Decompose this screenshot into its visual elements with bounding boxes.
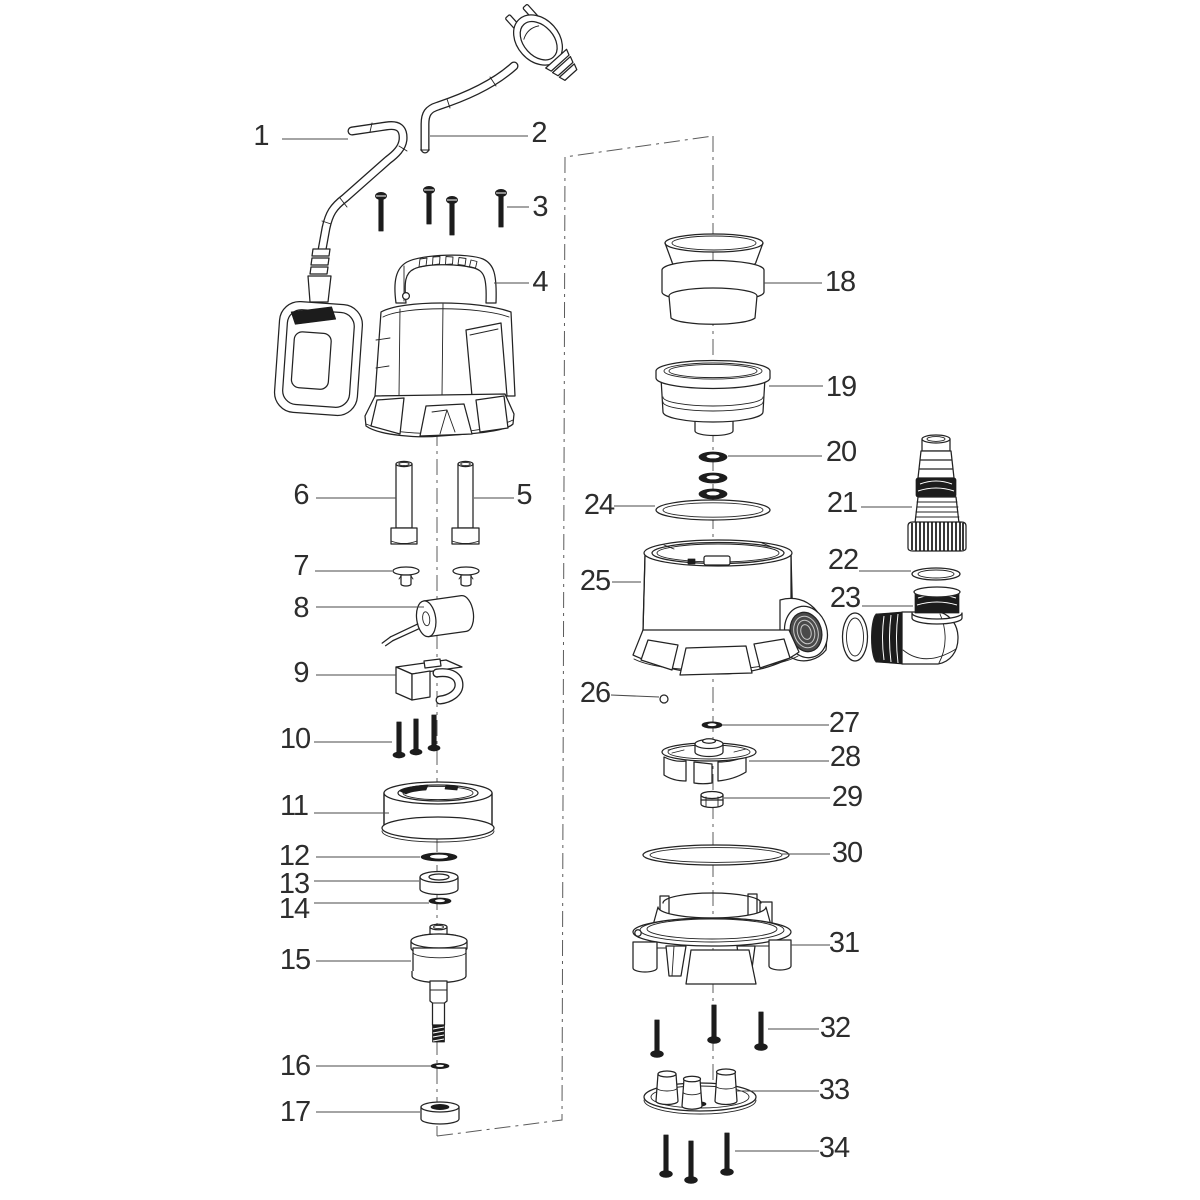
screw	[423, 186, 434, 224]
part-label-10: 10	[280, 723, 392, 755]
part-21-hose-adapter	[908, 435, 966, 551]
part-label-4: 4	[494, 266, 548, 298]
part-label-22: 22	[828, 544, 911, 576]
part-label-15: 15	[280, 944, 411, 976]
part-number: 5	[516, 479, 531, 511]
part-number: 4	[532, 266, 548, 298]
leader-line	[611, 695, 659, 697]
screw	[755, 1012, 768, 1050]
seal-ring	[699, 473, 727, 483]
part-label-27: 27	[722, 707, 859, 739]
part-number: 1	[253, 120, 268, 152]
part-number: 27	[829, 707, 859, 739]
pin	[393, 567, 419, 586]
part-5-sleeve	[452, 461, 479, 544]
part-9-bracket	[396, 659, 462, 700]
part-label-23: 23	[830, 582, 913, 614]
part-number: 6	[293, 479, 308, 511]
exploded-parts-diagram: 1234567891011121314151617181920212223242…	[0, 0, 1200, 1200]
screw	[410, 719, 422, 755]
part-label-5: 5	[474, 479, 532, 511]
part-23-elbow	[843, 587, 963, 664]
part-number: 2	[531, 117, 546, 149]
plate-post	[715, 1069, 737, 1105]
seal-ring	[699, 452, 727, 462]
part-31-base	[633, 893, 791, 984]
part-number: 18	[825, 266, 855, 298]
part-number: 7	[293, 550, 308, 582]
part-label-29: 29	[724, 781, 862, 813]
plate-post	[682, 1076, 702, 1109]
part-4-pump-body	[365, 255, 515, 437]
part-label-2: 2	[430, 117, 547, 149]
part-label-3: 3	[507, 191, 548, 223]
part-number: 9	[293, 657, 308, 689]
part-label-21: 21	[827, 487, 912, 519]
part-7-pins	[393, 567, 479, 586]
part-label-31: 31	[791, 927, 859, 959]
part-number: 29	[832, 781, 862, 813]
part-8-capacitor	[377, 594, 476, 646]
part-label-19: 19	[769, 371, 856, 403]
part-32-screws	[651, 1005, 768, 1057]
part-22-flat-washer	[912, 568, 960, 580]
part-14-washer	[429, 898, 451, 904]
part-15-rotor	[411, 924, 467, 1042]
part-16-washer	[431, 1063, 449, 1068]
part-label-14: 14	[279, 893, 429, 925]
part-label-20: 20	[728, 436, 856, 468]
part-28-impeller	[662, 739, 756, 784]
part-10-screws	[393, 715, 440, 758]
part-number: 15	[280, 944, 310, 976]
part-label-32: 32	[768, 1012, 850, 1044]
part-number: 32	[820, 1012, 850, 1044]
plug	[497, 0, 586, 90]
screw	[685, 1141, 698, 1183]
part-label-18: 18	[764, 266, 855, 298]
cable-strain-relief	[310, 249, 330, 274]
part-30-o-ring	[643, 845, 789, 865]
screw	[393, 722, 405, 758]
diagram-svg: 1234567891011121314151617181920212223242…	[0, 0, 1200, 1200]
part-label-7: 7	[293, 550, 392, 582]
part-number: 10	[280, 723, 310, 755]
part-number: 34	[819, 1132, 850, 1164]
part-label-34: 34	[735, 1132, 850, 1164]
part-label-26: 26	[580, 677, 659, 709]
part-29-nut	[701, 792, 723, 808]
part-27-washer	[702, 722, 722, 728]
part-number: 25	[580, 565, 610, 597]
part-label-8: 8	[293, 592, 424, 624]
part-number: 16	[280, 1050, 310, 1082]
part-3-screws	[375, 186, 506, 235]
screw	[428, 715, 440, 751]
part-17-seal	[421, 1102, 459, 1124]
screw	[375, 192, 386, 231]
seal-ring	[699, 489, 727, 499]
part-label-9: 9	[293, 657, 396, 689]
screw	[660, 1135, 673, 1177]
part-6-sleeve	[391, 461, 417, 544]
part-number: 31	[829, 927, 859, 959]
part-13-bearing	[420, 872, 458, 895]
part-number: 24	[584, 489, 615, 521]
part-label-6: 6	[293, 479, 396, 511]
part-label-1: 1	[253, 120, 348, 152]
part-label-25: 25	[580, 565, 641, 597]
part-number: 30	[832, 837, 862, 869]
screw	[446, 196, 457, 235]
part-label-16: 16	[280, 1050, 431, 1082]
part-2-power-cord	[421, 0, 586, 150]
part-number: 28	[830, 741, 860, 773]
pin	[453, 567, 479, 586]
float-body	[273, 300, 364, 417]
screw	[495, 189, 506, 227]
part-number: 17	[280, 1096, 310, 1128]
screw	[651, 1020, 664, 1057]
screw	[708, 1005, 721, 1043]
part-26-ball	[660, 695, 668, 703]
part-label-17: 17	[280, 1096, 420, 1128]
part-number: 21	[827, 487, 857, 519]
part-20-seal-rings	[699, 452, 727, 499]
part-number: 11	[280, 790, 308, 822]
part-number: 19	[826, 371, 856, 403]
part-number: 23	[830, 582, 860, 614]
plate-post	[656, 1071, 678, 1105]
screw	[721, 1133, 734, 1175]
part-number: 14	[279, 893, 310, 925]
part-number: 22	[828, 544, 858, 576]
part-18-seal-holder	[662, 234, 764, 324]
part-25-volute-housing	[633, 540, 833, 675]
part-number: 3	[532, 191, 547, 223]
part-label-24: 24	[584, 489, 655, 521]
part-19-seal-cup	[656, 361, 770, 436]
part-24-gasket	[656, 500, 770, 520]
part-number: 8	[293, 592, 308, 624]
part-label-30: 30	[781, 837, 862, 869]
part-11-motor-housing	[382, 782, 494, 842]
part-34-screws	[660, 1133, 734, 1183]
part-label-11: 11	[280, 790, 389, 822]
part-label-28: 28	[749, 741, 860, 773]
part-number: 33	[819, 1074, 849, 1106]
part-number: 20	[826, 436, 856, 468]
part-number: 26	[580, 677, 610, 709]
part-12-washer	[421, 853, 457, 861]
